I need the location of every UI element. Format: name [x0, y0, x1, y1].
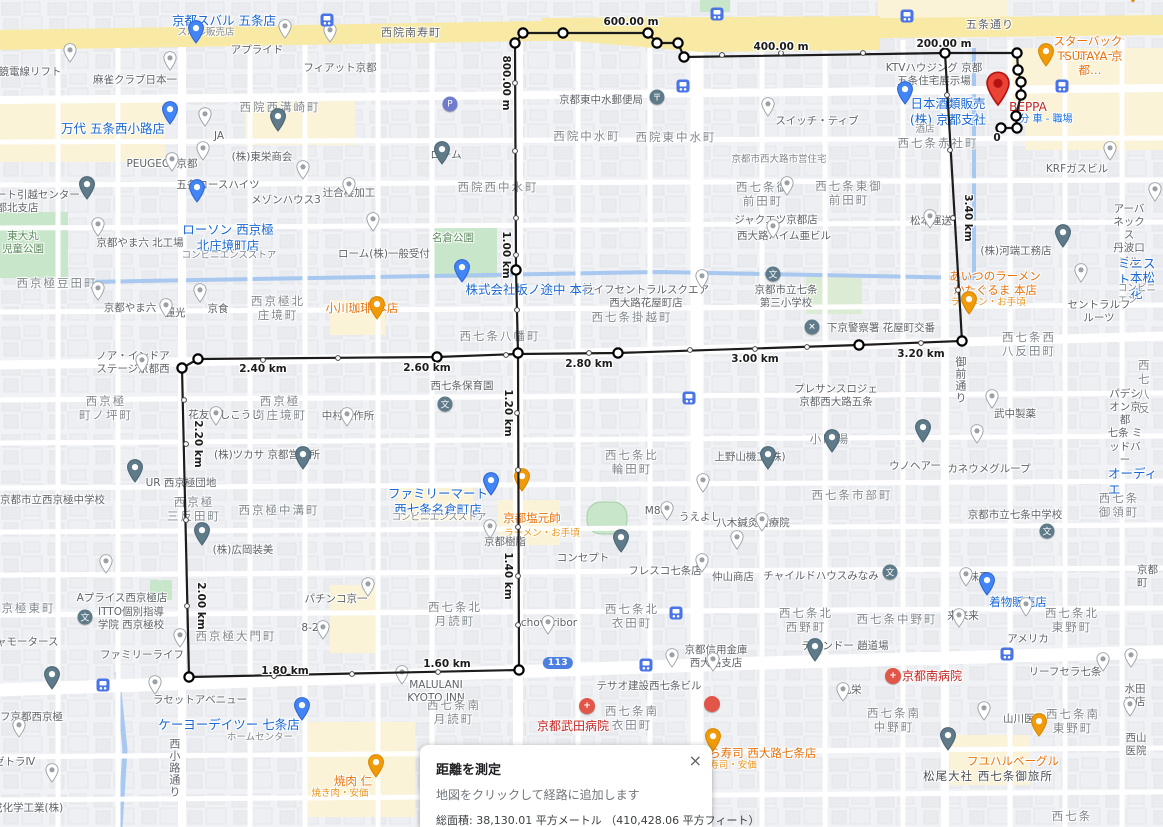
total-area-alt: （410,428.06 平方フィート）	[605, 814, 759, 827]
total-area-value: 38,130.01 平方メートル	[476, 814, 601, 827]
basemap	[0, 0, 1163, 827]
google-maps-canvas[interactable]: 京都スバル 五条店スバル販売店西院南寿町アプライドフィアット京都神鏡電線リフト麻…	[0, 0, 1163, 827]
panel-hint: 地図をクリックして経路に追加します	[436, 786, 696, 803]
panel-title: 距離を測定	[436, 759, 696, 778]
close-icon[interactable]: ×	[689, 753, 702, 769]
total-area-row: 総面積: 38,130.01 平方メートル （410,428.06 平方フィート…	[436, 812, 696, 827]
measure-panel: × 距離を測定 地図をクリックして経路に追加します 総面積: 38,130.01…	[420, 745, 712, 827]
